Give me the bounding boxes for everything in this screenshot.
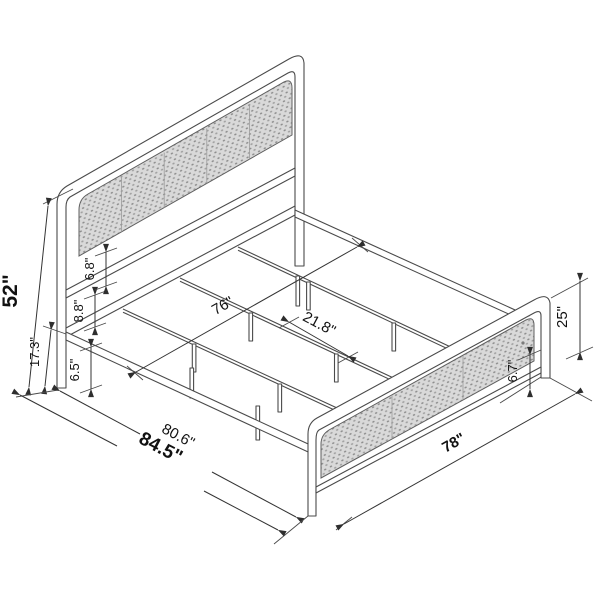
dim-platform-height-label: 17.3" <box>27 337 42 367</box>
diagram-canvas: 52" 17.3" 6.5" 8.8" 6.8" 76" 21.8" <box>0 0 600 600</box>
dim-headboard-height-label: 52" <box>0 274 22 307</box>
dim-footboard-clearance-label: 6.7" <box>505 359 520 382</box>
dim-rail-gap-label: 8.8" <box>71 299 86 322</box>
dim-underbed-clearance-label: 6.5" <box>67 358 82 381</box>
bed-frame-diagram: 52" 17.3" 6.5" 8.8" 6.8" 76" 21.8" <box>0 0 600 600</box>
dim-footboard-height-label: 25" <box>554 306 571 328</box>
dim-panel-gap-label: 6.8" <box>82 257 97 280</box>
footboard-screw-hole <box>521 341 524 344</box>
